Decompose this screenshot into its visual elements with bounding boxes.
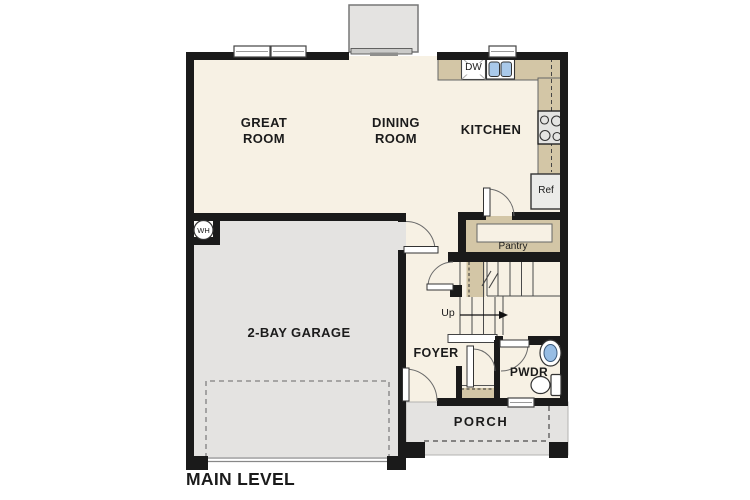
dining-room-label: DINING ROOM [354, 115, 438, 146]
kitchen-label: KITCHEN [447, 122, 535, 138]
dishwasher-label: DW [462, 62, 485, 74]
level-title: MAIN LEVEL [186, 469, 386, 490]
floor-plan: GREAT ROOM DINING ROOM KITCHEN 2-BAY GAR… [0, 0, 750, 500]
floor-plan-drawing [0, 0, 750, 500]
garage-label: 2-BAY GARAGE [247, 325, 351, 341]
sliding-glass-door [351, 49, 412, 57]
porch-label: PORCH [438, 414, 524, 430]
rear-bump-out [349, 5, 418, 52]
pantry-label: Pantry [487, 241, 539, 253]
water-heater-label: WH [194, 226, 213, 235]
stair-bottom-step [448, 335, 497, 343]
great-room-label: GREAT ROOM [222, 115, 306, 146]
garage-door [208, 457, 387, 463]
range-stove [538, 111, 563, 144]
kitchen-sink [487, 59, 515, 79]
stairs-up-label: Up [437, 307, 459, 320]
refrigerator-label: Ref [532, 185, 560, 197]
powder-sink [540, 340, 561, 366]
foyer-label: FOYER [407, 346, 465, 361]
window-great-room-1 [234, 46, 270, 57]
powder-room-label: PWDR [506, 365, 552, 379]
window-kitchen [489, 46, 516, 57]
window-powder-room [508, 398, 534, 407]
window-great-room-2 [271, 46, 307, 57]
